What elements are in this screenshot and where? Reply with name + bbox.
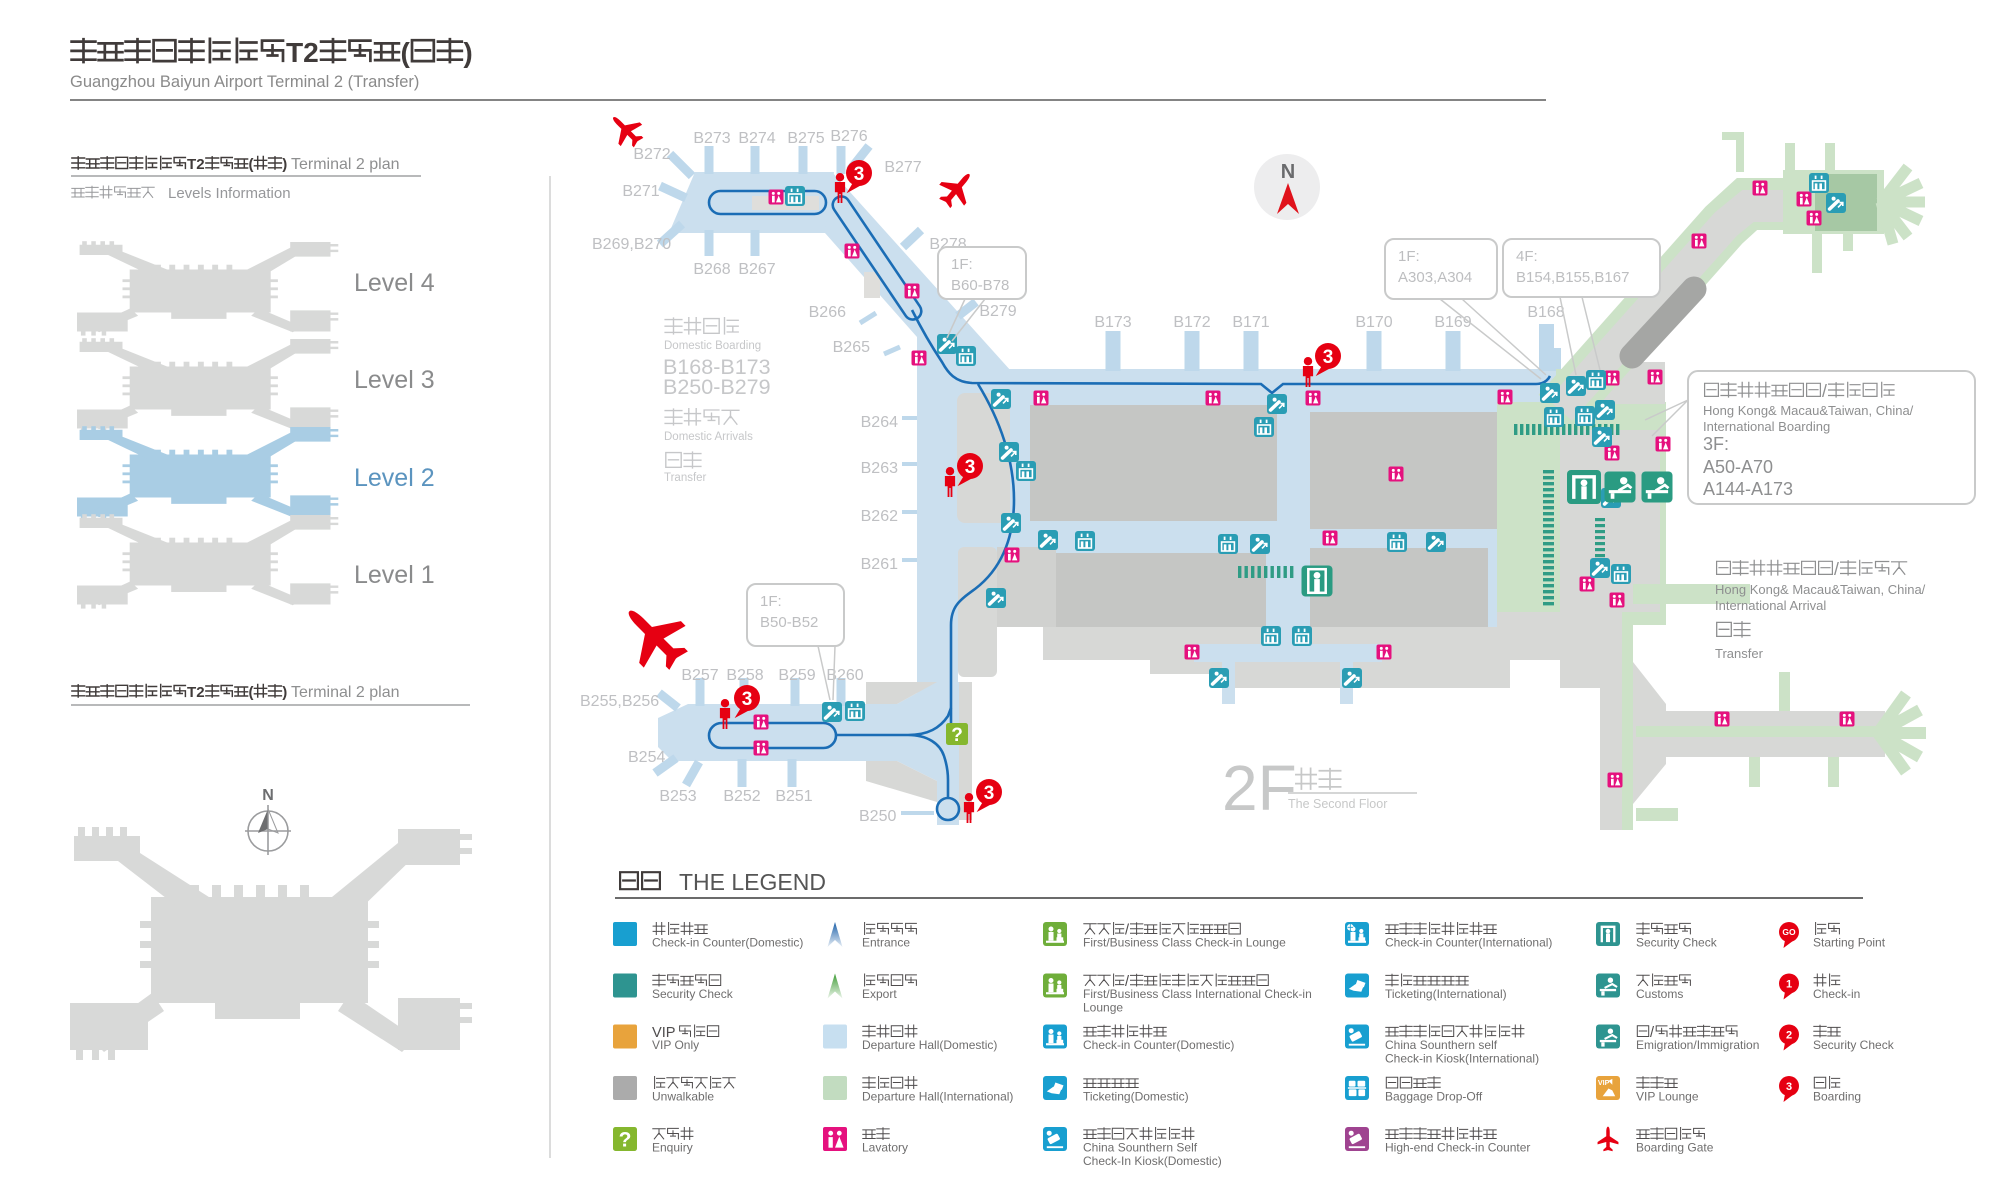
svg-text:Security Check: Security Check: [1813, 1038, 1895, 1052]
svg-text:2: 2: [1786, 1029, 1792, 1041]
svg-text:Guangzhou Baiyun Airport Termi: Guangzhou Baiyun Airport Terminal 2 (Tra…: [70, 73, 419, 91]
svg-text:1: 1: [1786, 978, 1792, 990]
svg-text:Check-in Kiosk(International): Check-in Kiosk(International): [1385, 1052, 1539, 1066]
svg-text:Export: Export: [862, 987, 897, 1001]
svg-text:Boarding Gate: Boarding Gate: [1636, 1141, 1714, 1155]
svg-text:B266: B266: [809, 304, 846, 321]
svg-text:?: ?: [619, 1129, 632, 1152]
svg-text:B276: B276: [830, 128, 867, 145]
svg-text:Terminal 2 plan: Terminal 2 plan: [291, 684, 400, 701]
svg-text:China Sounthern Self: China Sounthern Self: [1083, 1141, 1198, 1155]
svg-text:Security Check: Security Check: [652, 987, 734, 1001]
svg-text:B170: B170: [1355, 314, 1392, 331]
svg-text:B258: B258: [726, 667, 763, 684]
svg-text:): ): [282, 684, 287, 701]
svg-text:Ticketing(International): Ticketing(International): [1385, 987, 1507, 1001]
svg-text:VIP: VIP: [1598, 1078, 1610, 1087]
svg-text:B275: B275: [787, 130, 824, 147]
svg-text:Entrance: Entrance: [862, 936, 910, 950]
svg-text:THE LEGEND: THE LEGEND: [679, 869, 826, 895]
svg-text:(: (: [401, 37, 411, 68]
svg-text:Emigration/Immigration: Emigration/Immigration: [1636, 1038, 1759, 1052]
svg-text:The Second Floor: The Second Floor: [1288, 797, 1387, 811]
svg-text:B259: B259: [778, 667, 815, 684]
svg-text:Unwalkable: Unwalkable: [652, 1090, 714, 1104]
svg-text:B265: B265: [833, 339, 870, 356]
svg-text:3F:: 3F:: [1703, 434, 1729, 454]
svg-text:B254: B254: [628, 749, 665, 766]
svg-text:Level 4: Level 4: [354, 269, 435, 297]
svg-text:B277: B277: [884, 159, 921, 176]
svg-text:3: 3: [1323, 347, 1334, 368]
svg-text:Hong Kong& Macau&Taiwan, China: Hong Kong& Macau&Taiwan, China/: [1703, 403, 1914, 418]
svg-text:Starting Point: Starting Point: [1813, 936, 1886, 950]
svg-text:4F:: 4F:: [1516, 248, 1538, 265]
svg-text:2F: 2F: [1222, 752, 1297, 824]
svg-text:B173: B173: [1094, 314, 1131, 331]
svg-text:Enquiry: Enquiry: [652, 1141, 693, 1155]
svg-text:B274: B274: [738, 130, 775, 147]
svg-text:B252: B252: [723, 788, 760, 805]
svg-text:Departure Hall(Domestic): Departure Hall(Domestic): [862, 1038, 997, 1052]
svg-text:Check-in: Check-in: [1813, 987, 1860, 1001]
svg-text:Terminal 2 plan: Terminal 2 plan: [291, 156, 400, 173]
svg-text:B268: B268: [693, 261, 730, 278]
svg-text:B250-B279: B250-B279: [663, 375, 771, 399]
svg-text:B273: B273: [693, 130, 730, 147]
svg-text:International Boarding: International Boarding: [1703, 419, 1830, 434]
svg-text:3: 3: [984, 783, 995, 804]
svg-text:Level 3: Level 3: [354, 366, 435, 394]
svg-text:3: 3: [1786, 1081, 1792, 1093]
svg-text:A144-A173: A144-A173: [1703, 479, 1793, 499]
svg-text:B60-B78: B60-B78: [951, 277, 1009, 294]
svg-text:3: 3: [742, 689, 753, 710]
svg-text:High-end Check-in Counter: High-end Check-in Counter: [1385, 1141, 1530, 1155]
svg-text:N: N: [262, 787, 274, 804]
svg-text:Transfer: Transfer: [664, 472, 707, 484]
svg-text:B154,B155,B167: B154,B155,B167: [1516, 269, 1629, 286]
svg-text:B253: B253: [659, 788, 696, 805]
svg-text:Boarding: Boarding: [1813, 1090, 1861, 1104]
svg-text:B255,B256: B255,B256: [580, 693, 659, 710]
svg-text:N: N: [1281, 161, 1295, 183]
svg-text:3: 3: [854, 164, 865, 185]
svg-text:Level 1: Level 1: [354, 561, 435, 589]
svg-text:First/Business Class Check-in: First/Business Class Check-in Lounge: [1083, 936, 1286, 950]
svg-text:?: ?: [951, 725, 963, 746]
svg-text:Ticketing(Domestic): Ticketing(Domestic): [1083, 1090, 1189, 1104]
svg-text:): ): [282, 156, 287, 173]
svg-text:Security Check: Security Check: [1636, 936, 1718, 950]
svg-text:1F:: 1F:: [760, 593, 782, 610]
svg-text:International Arrival: International Arrival: [1715, 598, 1826, 613]
svg-text:B257: B257: [681, 667, 718, 684]
svg-text:): ): [463, 37, 472, 68]
svg-text:B264: B264: [861, 414, 898, 431]
svg-text:T2: T2: [286, 37, 319, 68]
svg-text:B169: B169: [1434, 314, 1471, 331]
svg-text:Levels Information: Levels Information: [168, 185, 291, 202]
svg-text:Customs: Customs: [1636, 987, 1683, 1001]
svg-text:GO: GO: [1782, 927, 1796, 937]
svg-text:Level 2: Level 2: [354, 464, 435, 492]
svg-text:Lavatory: Lavatory: [862, 1141, 908, 1155]
svg-text:Check-in Counter(International: Check-in Counter(International): [1385, 936, 1552, 950]
svg-text:Hong Kong& Macau&Taiwan, China: Hong Kong& Macau&Taiwan, China/: [1715, 582, 1926, 597]
svg-text:A50-A70: A50-A70: [1703, 457, 1773, 477]
svg-text:T2: T2: [187, 684, 205, 701]
svg-text:3: 3: [965, 457, 976, 478]
svg-text:1F:: 1F:: [1398, 248, 1420, 265]
svg-text:B269,B270: B269,B270: [592, 236, 671, 253]
svg-text:Baggage Drop-Off: Baggage Drop-Off: [1385, 1090, 1483, 1104]
svg-text:T2: T2: [187, 156, 205, 173]
svg-text:Lounge: Lounge: [1083, 1001, 1123, 1015]
svg-text:B168: B168: [1527, 304, 1564, 321]
svg-text:B171: B171: [1232, 314, 1269, 331]
svg-text:B251: B251: [775, 788, 812, 805]
svg-text:B260: B260: [826, 667, 863, 684]
svg-text:B50-B52: B50-B52: [760, 614, 818, 631]
svg-text:B279: B279: [979, 303, 1016, 320]
svg-text:Check-In Kiosk(Domestic): Check-In Kiosk(Domestic): [1083, 1154, 1222, 1168]
svg-text:VIP Only: VIP Only: [652, 1038, 699, 1052]
svg-text:China Sounthern self: China Sounthern self: [1385, 1038, 1498, 1052]
svg-text:Departure Hall(International): Departure Hall(International): [862, 1090, 1013, 1104]
svg-text:B271: B271: [622, 183, 659, 200]
svg-text:B250: B250: [859, 808, 896, 825]
svg-text:A303,A304: A303,A304: [1398, 269, 1472, 286]
svg-text:Check-in Counter(Domestic): Check-in Counter(Domestic): [652, 936, 803, 950]
svg-text:/: /: [1834, 559, 1839, 579]
svg-text:B262: B262: [861, 508, 898, 525]
svg-text:B261: B261: [861, 556, 898, 573]
svg-text:Check-in Counter(Domestic): Check-in Counter(Domestic): [1083, 1038, 1234, 1052]
svg-text:B267: B267: [738, 261, 775, 278]
svg-text:Transfer: Transfer: [1715, 646, 1764, 661]
svg-text:Domestic Arrivals: Domestic Arrivals: [664, 431, 753, 443]
svg-text:B272: B272: [633, 146, 670, 163]
svg-text:/: /: [1822, 381, 1827, 401]
svg-text:VIP Lounge: VIP Lounge: [1636, 1090, 1699, 1104]
svg-text:B263: B263: [861, 460, 898, 477]
svg-text:Domestic Boarding: Domestic Boarding: [664, 340, 761, 352]
svg-text:1F:: 1F:: [951, 256, 973, 273]
svg-text:First/Business Class Internati: First/Business Class International Check…: [1083, 987, 1312, 1001]
svg-text:B172: B172: [1173, 314, 1210, 331]
